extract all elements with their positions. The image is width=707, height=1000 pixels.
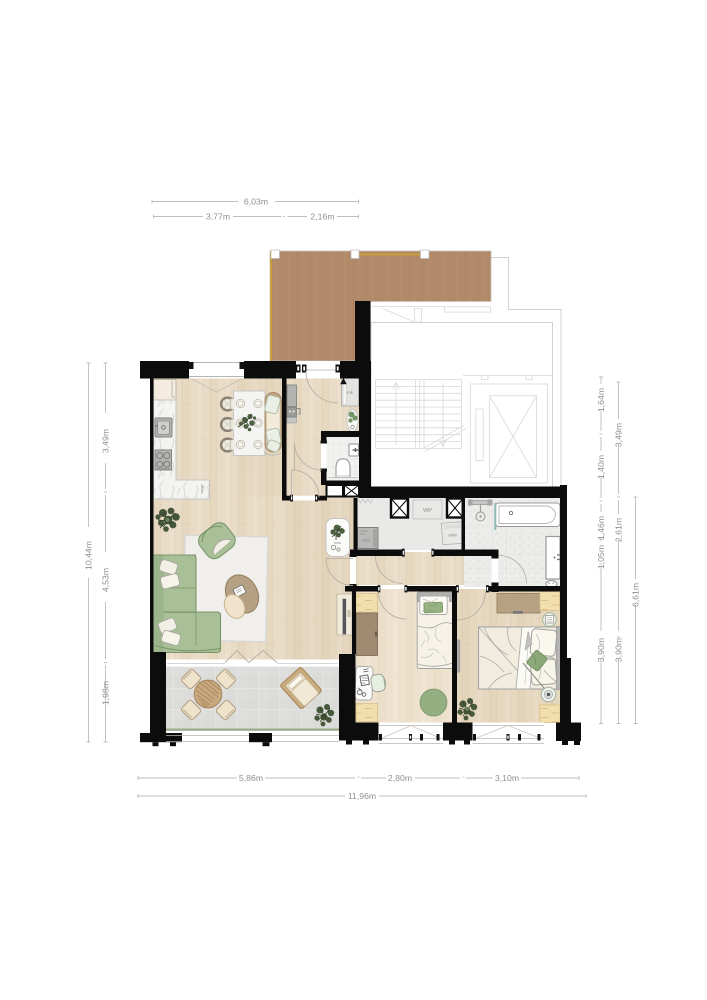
svg-text:6,03m: 6,03m: [244, 197, 268, 207]
svg-text:1,98m: 1,98m: [101, 681, 111, 705]
svg-text:3,90m: 3,90m: [614, 638, 624, 662]
svg-text:3,90m: 3,90m: [596, 638, 606, 662]
svg-text:2,16m: 2,16m: [310, 212, 334, 222]
svg-text:1,64m: 1,64m: [596, 388, 606, 412]
svg-text:3,10m: 3,10m: [495, 773, 519, 783]
svg-text:2,61m: 2,61m: [614, 518, 624, 542]
svg-text:2,80m: 2,80m: [388, 773, 412, 783]
svg-text:6,61m: 6,61m: [631, 583, 641, 607]
svg-text:10,44m: 10,44m: [84, 541, 94, 570]
svg-text:WM: WM: [362, 538, 370, 543]
svg-text:11,96m: 11,96m: [348, 791, 376, 801]
svg-text:4,53m: 4,53m: [101, 568, 111, 592]
svg-text:1,40m: 1,40m: [596, 455, 606, 479]
svg-text:1,46m: 1,46m: [596, 516, 606, 540]
svg-text:wtw: wtw: [448, 532, 457, 539]
svg-text:5,86m: 5,86m: [239, 773, 263, 783]
svg-text:3,49m: 3,49m: [614, 423, 624, 447]
svg-text:mk: mk: [347, 390, 354, 395]
svg-text:WP: WP: [423, 508, 432, 514]
svg-text:1,05m: 1,05m: [596, 545, 606, 569]
svg-text:3,77m: 3,77m: [206, 212, 230, 222]
svg-text:3,49m: 3,49m: [101, 429, 111, 453]
